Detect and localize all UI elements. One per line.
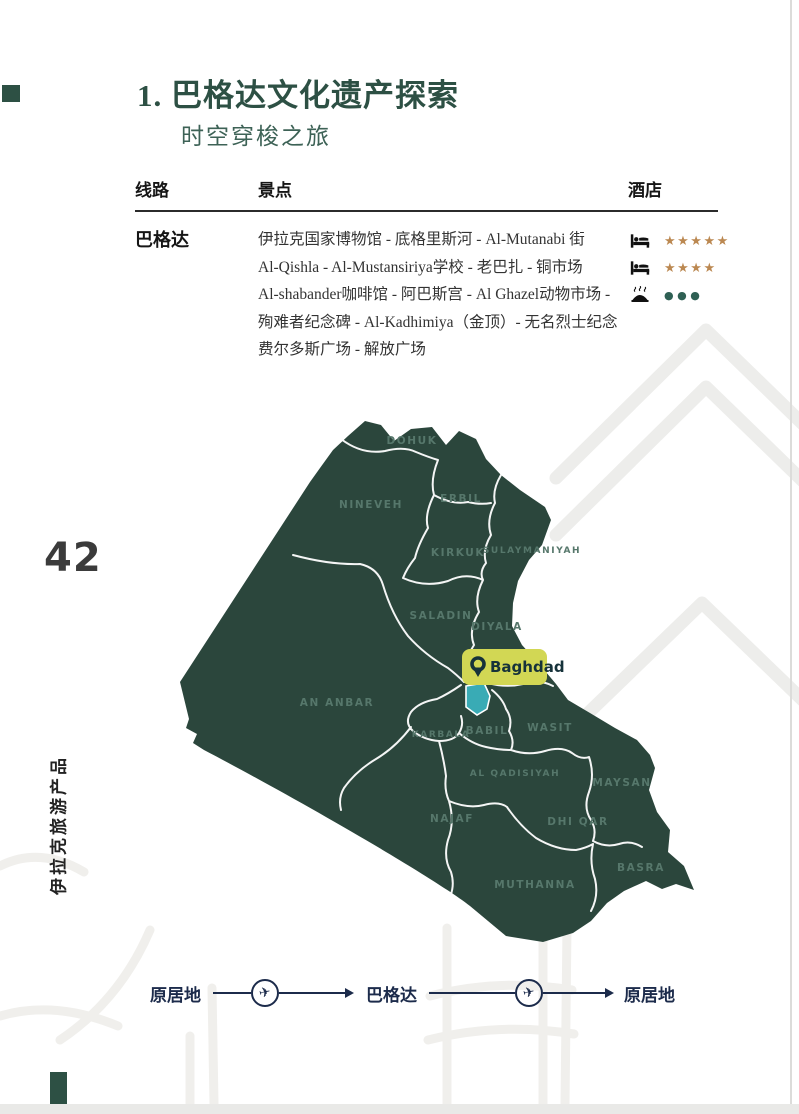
attraction-line: 伊拉克国家博物馆 - 底格里斯河 - Al-Mutanabi 街 <box>258 226 638 254</box>
baghdad-province-highlight <box>466 683 490 715</box>
brochure-page: DOHUK NINEVEH ERBIL KIRKUK SULAYMANIYAH … <box>0 0 799 1114</box>
map-label-najaf: NAJAF <box>430 813 474 825</box>
map-label-nineveh: NINEVEH <box>339 499 403 511</box>
dot-rating: ●●● <box>664 289 703 302</box>
page-right-edge <box>790 0 792 1114</box>
plane-icon: ✈ <box>251 979 279 1007</box>
map-label-sulaymaniyah: SULAYMANIYAH <box>483 546 581 556</box>
journey-origin: 原居地 <box>150 981 201 1006</box>
baghdad-marker-label: Baghdad <box>490 658 565 676</box>
map-label-maysan: MAYSAN <box>592 777 651 789</box>
journey-line <box>543 992 605 994</box>
plane-icon: ✈ <box>515 979 543 1007</box>
side-vertical-label: 伊拉克旅游产品 <box>45 755 70 895</box>
map-label-diyala: DIYALA <box>471 621 523 633</box>
map-label-kirkuk: KIRKUK <box>431 547 485 559</box>
restaurant-icon <box>630 286 650 304</box>
bed-icon <box>630 259 650 277</box>
journey-diagram: 原居地 ✈ 巴格达 ✈ 原居地 <box>150 977 686 1009</box>
page-bottom-edge <box>0 1104 799 1114</box>
map-label-muthanna: MUTHANNA <box>494 879 576 891</box>
background-arch-pattern <box>552 330 799 748</box>
attraction-line: Al-shabander咖啡馆 - 阿巴斯宫 - Al Ghazel动物市场 - <box>258 281 638 309</box>
map-label-al-qadisiyah: AL QADISIYAH <box>470 769 560 779</box>
column-header-hotel: 酒店 <box>628 176 662 201</box>
page-subtitle: 时空穿梭之旅 <box>181 117 331 151</box>
map-label-karbala: KARBALA <box>412 730 471 740</box>
map-label-basra: BASRA <box>617 862 665 874</box>
hotel-rating-row: ★★★★ <box>630 258 717 278</box>
arrow-icon <box>345 988 354 998</box>
page-number: 42 <box>44 535 102 581</box>
journey-line <box>429 992 515 994</box>
attraction-line: 殉难者纪念碑 - Al-Kadhimiya（金顶）- 无名烈士纪念 <box>258 309 638 337</box>
star-rating: ★★★★★ <box>664 234 730 249</box>
journey-line <box>279 992 345 994</box>
page-title: 1. 巴格达文化遗产探索 <box>137 70 459 115</box>
map-label-wasit: WASIT <box>527 722 573 734</box>
hotel-rating-row: ★★★★★ <box>630 231 730 251</box>
map-label-dhi-qar: DHI QAR <box>547 816 608 828</box>
journey-destination: 巴格达 <box>366 981 417 1006</box>
map-label-an-anbar: AN ANBAR <box>300 697 375 709</box>
route-name: 巴格达 <box>135 226 189 252</box>
journey-return: 原居地 <box>624 981 675 1006</box>
top-left-accent-mark <box>2 85 20 102</box>
attractions-list: 伊拉克国家博物馆 - 底格里斯河 - Al-Mutanabi 街 Al-Qish… <box>258 226 638 364</box>
column-header-attractions: 景点 <box>258 176 292 201</box>
arrow-icon <box>605 988 614 998</box>
table-header-rule <box>135 210 718 212</box>
column-header-route: 线路 <box>135 176 169 201</box>
map-label-babil: BABIL <box>466 725 509 737</box>
attraction-line: Al-Qishla - Al-Mustansiriya学校 - 老巴扎 - 铜市… <box>258 254 638 282</box>
bottom-left-accent-mark <box>50 1072 67 1108</box>
map-label-erbil: ERBIL <box>440 493 482 505</box>
restaurant-rating-row: ●●● <box>630 285 703 305</box>
attraction-line: 费尔多斯广场 - 解放广场 <box>258 336 638 364</box>
map-label-dohuk: DOHUK <box>386 435 437 447</box>
journey-line <box>213 992 251 994</box>
map-label-saladin: SALADIN <box>409 610 472 622</box>
page-graphics: DOHUK NINEVEH ERBIL KIRKUK SULAYMANIYAH … <box>0 0 799 1114</box>
star-rating: ★★★★ <box>664 261 717 276</box>
bed-icon <box>630 232 650 250</box>
